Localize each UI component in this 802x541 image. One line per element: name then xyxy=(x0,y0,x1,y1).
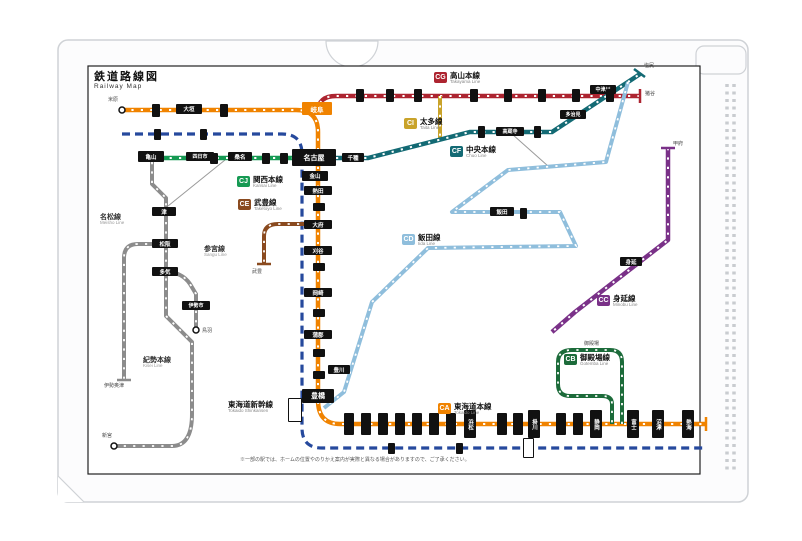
minor-station-box xyxy=(344,413,354,435)
minor-station-box xyxy=(395,413,405,435)
minor-station-box xyxy=(520,208,527,219)
line-name-en: Taita Line xyxy=(420,126,443,131)
line-name-en: Iida Line xyxy=(418,242,441,247)
line-badge-ca: CA東海道本線Tokaido Line xyxy=(438,403,492,416)
station-box: 岐阜 xyxy=(302,102,332,115)
station-box: 松阪 xyxy=(152,239,178,248)
minor-station-box xyxy=(313,371,325,379)
terminus-label: 伊勢奥津 xyxy=(104,382,124,389)
minor-station-box xyxy=(280,153,288,164)
line-badge-cd: CD飯田線Iida Line xyxy=(402,234,441,247)
line-name-en: Tokaido Line xyxy=(454,411,492,416)
shinkansen-station-box xyxy=(288,398,302,422)
station-box: 掛川 xyxy=(528,410,540,438)
minor-station-box xyxy=(412,413,422,435)
minor-station-box xyxy=(378,413,388,435)
minor-station-box xyxy=(313,203,325,211)
station-box: 身延 xyxy=(620,257,642,266)
minor-station-box xyxy=(152,104,160,117)
line-name-en: Tokaido Shinkansen xyxy=(228,409,273,414)
station-box: 豊橋 xyxy=(302,389,334,403)
line-name-en: Taketoyo Line xyxy=(254,207,282,212)
station-box: 高蔵寺 xyxy=(496,127,524,136)
minor-station-box xyxy=(262,153,270,164)
station-box: 多気 xyxy=(152,267,178,276)
minor-station-box xyxy=(356,89,364,102)
minor-station-box xyxy=(361,413,371,435)
gray-line-label: 参宮線Sangu Line xyxy=(204,246,227,258)
line-code-chip: CD xyxy=(402,234,415,245)
minor-station-box xyxy=(513,413,523,435)
minor-station-box xyxy=(456,443,463,454)
terminus-circle xyxy=(111,443,117,449)
minor-station-box xyxy=(606,89,614,102)
terminus-label: 鳥羽 xyxy=(202,327,212,334)
terminus-label: 米原 xyxy=(108,96,118,103)
gray-line-label: 紀勢本線Kisei Line xyxy=(143,357,171,369)
line-name-en: Minobu Line xyxy=(613,303,638,308)
line-badge-shinkansen: 東海道新幹線Tokaido Shinkansen xyxy=(228,401,273,414)
minor-station-box xyxy=(538,89,546,102)
line-badge-ci: CI太多線Taita Line xyxy=(404,118,443,131)
minor-station-box xyxy=(429,413,439,435)
station-box: 金山 xyxy=(302,171,328,181)
line-name-en: Takayama Line xyxy=(450,80,480,85)
station-box: 静岡 xyxy=(590,410,602,438)
terminus-label: 武豊 xyxy=(252,268,262,275)
minor-station-box xyxy=(414,89,422,102)
terminus-circle xyxy=(119,107,125,113)
station-box: 豊川 xyxy=(328,365,350,374)
station-box: 大垣 xyxy=(176,104,202,114)
minor-station-box xyxy=(313,309,325,317)
map-panel-border xyxy=(88,66,700,474)
line-code-chip: CB xyxy=(564,354,577,365)
terminus-label: 新宮 xyxy=(102,432,112,439)
map-title-en: Railway Map xyxy=(94,84,159,91)
station-box: 桑名 xyxy=(228,152,252,161)
minor-station-box xyxy=(220,104,228,117)
minor-station-box xyxy=(478,126,485,138)
station-box: 沼津 xyxy=(652,410,664,438)
shinkansen-station-box xyxy=(523,438,534,458)
station-box: 伊勢市 xyxy=(182,301,210,310)
line-code-chip: CJ xyxy=(237,176,250,187)
line-code-chip: CF xyxy=(450,146,463,157)
line-code-chip: CI xyxy=(404,118,417,129)
line-badge-cj: CJ関西本線Kansai Line xyxy=(237,176,283,189)
station-box: 大府 xyxy=(304,220,332,229)
line-name-en: Kansai Line xyxy=(253,184,283,189)
station-box: 富士 xyxy=(627,410,639,438)
terminus-label: 甲府 xyxy=(673,140,683,147)
minor-station-box xyxy=(388,443,395,454)
line-name-en: Gotemba Line xyxy=(580,362,610,367)
station-box: 多治見 xyxy=(560,110,586,119)
minor-station-box xyxy=(573,413,583,435)
minor-station-box xyxy=(386,89,394,102)
station-box: 亀山 xyxy=(138,151,164,162)
minor-station-box xyxy=(556,413,566,435)
line-badge-ce: CE武豊線Taketoyo Line xyxy=(238,199,282,212)
footer-note: ※一部の駅では、ホームの位置やのりかえ案内が実際と異なる場合がありますので、ご了… xyxy=(240,458,470,463)
station-box: 飯田 xyxy=(490,207,514,216)
minor-station-box xyxy=(200,129,207,140)
line-badge-cc: CC身延線Minobu Line xyxy=(597,295,638,308)
line-badge-cf: CF中央本線Chuo Line xyxy=(450,146,496,159)
station-box: 熱田 xyxy=(304,186,332,195)
terminus-label: 塩尻 xyxy=(644,62,654,69)
minor-station-box xyxy=(497,413,507,435)
minor-station-box xyxy=(313,263,325,271)
line-badge-cg: CG高山本線Takayama Line xyxy=(434,72,480,85)
station-box: 名古屋 xyxy=(292,149,336,166)
minor-station-box xyxy=(446,413,456,435)
line-code-chip: CC xyxy=(597,295,610,306)
minor-station-box xyxy=(154,129,161,140)
terminus-circle xyxy=(193,327,199,333)
minor-station-box xyxy=(313,349,325,357)
terminus-label: 猪谷 xyxy=(645,90,655,97)
minor-station-box xyxy=(572,89,580,102)
map-title-jp: 鉄道路線図 xyxy=(94,72,159,84)
line-code-chip: CA xyxy=(438,403,451,414)
station-box: 岡崎 xyxy=(304,288,332,297)
station-box: 千種 xyxy=(342,153,364,162)
minor-station-box xyxy=(504,89,512,102)
terminus-label: 御殿場 xyxy=(584,340,599,347)
gray-line-label: 名松線Meisho Line xyxy=(100,214,124,226)
map-title: 鉄道路線図 Railway Map xyxy=(94,72,159,90)
railway-map-clear-file: 鉄道路線図 Railway Map ※一部の駅では、ホームの位置やのりかえ案内が… xyxy=(0,0,802,541)
station-box: 蒲郡 xyxy=(304,330,332,339)
station-box: 刈谷 xyxy=(304,246,332,255)
line-name-en: Chuo Line xyxy=(466,154,496,159)
station-box: 熱海 xyxy=(682,410,694,438)
line-code-chip: CG xyxy=(434,72,447,83)
line-code-chip: CE xyxy=(238,199,251,210)
line-badge-cb: CB御殿場線Gotemba Line xyxy=(564,354,610,367)
minor-station-box xyxy=(210,153,218,164)
minor-station-box xyxy=(470,89,478,102)
minor-station-box xyxy=(534,126,541,138)
station-box: 津 xyxy=(152,207,176,216)
clear-file-index-tab xyxy=(696,46,746,74)
